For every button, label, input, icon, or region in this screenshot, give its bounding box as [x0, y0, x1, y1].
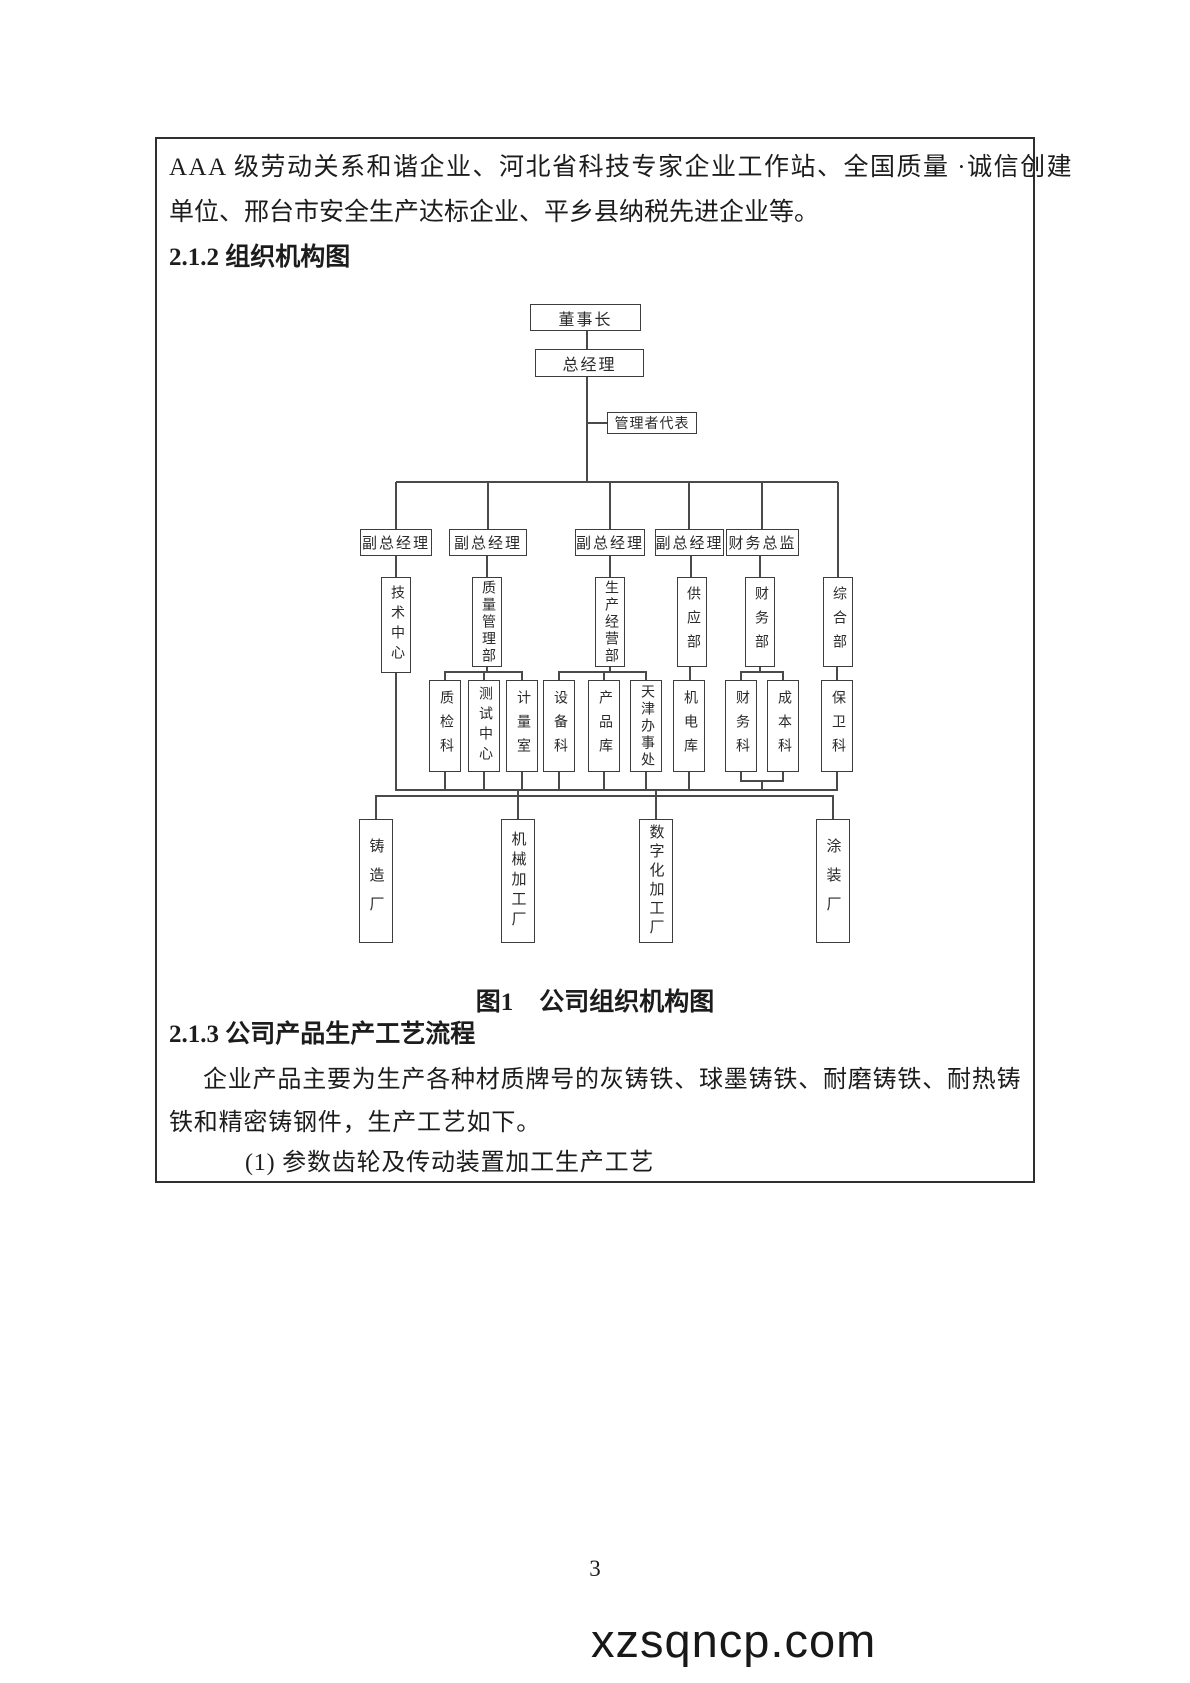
connector-line	[395, 556, 397, 578]
org-node-finance-dept: 财务部	[745, 577, 775, 667]
connector-line	[586, 377, 588, 482]
figure-label: 图1	[476, 989, 514, 1016]
figure-caption: 图1公司组织机构图	[157, 982, 1033, 1018]
org-node-management-rep: 管理者代表	[607, 412, 697, 434]
figure-title: 公司组织机构图	[539, 989, 714, 1016]
org-node-production-dept: 生产经营部	[595, 577, 625, 667]
connector-line	[395, 789, 838, 791]
connector-line	[655, 790, 657, 819]
connector-line	[740, 671, 784, 673]
org-node-vp1: 副总经理	[360, 529, 432, 556]
org-node-general-manager: 总经理	[535, 349, 644, 377]
connector-line	[396, 481, 838, 483]
connector-line	[517, 790, 519, 819]
connector-line	[487, 482, 489, 529]
connector-line	[832, 796, 834, 819]
org-node-vp3: 副总经理	[575, 529, 645, 556]
org-node-tianjin-office: 天津办事处	[630, 680, 662, 772]
org-node-product-warehouse: 产品库	[588, 680, 620, 772]
org-node-test-center: 测试中心	[468, 680, 500, 772]
connector-line	[761, 482, 763, 529]
document-page: AAA 级劳动关系和谐企业、河北省科技专家企业工作站、全国质量 ·诚信创建 单位…	[0, 0, 1190, 1683]
body-paragraph-line-1: 企业产品主要为生产各种材质牌号的灰铸铁、球墨铸铁、耐磨铸铁、耐热铸	[203, 1064, 1023, 1096]
org-node-mech-elec-warehouse: 机电库	[673, 680, 705, 772]
connector-line	[486, 556, 488, 578]
connector-line	[689, 667, 691, 681]
org-node-general-dept: 综合部	[823, 577, 853, 667]
org-node-machining-plant: 机械加工厂	[501, 819, 535, 943]
org-node-cfo: 财务总监	[726, 529, 799, 556]
org-node-qc-section: 质检科	[429, 680, 461, 772]
org-node-tech-center: 技术中心	[381, 577, 411, 673]
org-node-vp4: 副总经理	[655, 529, 724, 556]
intro-line-1: AAA 级劳动关系和谐企业、河北省科技专家企业工作站、全国质量 ·诚信创建	[169, 152, 1023, 184]
connector-line	[837, 482, 839, 578]
org-node-chairman: 董事长	[530, 304, 641, 331]
org-node-supply-dept: 供应部	[677, 577, 707, 667]
list-item-1: (1) 参数齿轮及传动装置加工生产工艺	[245, 1147, 1023, 1179]
section-heading-213: 2.1.3 公司产品生产工艺流程	[169, 1019, 1023, 1051]
body-paragraph-line-2: 铁和精密铸钢件，生产工艺如下。	[169, 1107, 1023, 1139]
connector-line	[375, 795, 834, 797]
connector-line	[759, 556, 761, 578]
org-node-equipment-section: 设备科	[543, 680, 575, 772]
org-node-quality-dept: 质量管理部	[472, 577, 502, 667]
connector-line	[395, 482, 397, 529]
org-node-finance-section: 财务科	[725, 680, 757, 772]
org-node-security-section: 保卫科	[821, 680, 853, 772]
org-node-vp2: 副总经理	[449, 529, 527, 556]
org-node-digital-plant: 数字化加工厂	[639, 819, 673, 943]
connector-line	[688, 482, 690, 529]
org-node-cost-section: 成本科	[767, 680, 799, 772]
intro-line-2: 单位、邢台市安全生产达标企业、平乡县纳税先进企业等。	[169, 197, 1023, 229]
org-node-foundry: 铸造厂	[359, 819, 393, 943]
org-node-painting-plant: 涂装厂	[816, 819, 850, 943]
connector-line	[609, 556, 611, 578]
connector-line	[375, 796, 377, 819]
watermark: xzsqncp.com	[591, 1615, 876, 1667]
page-number: 3	[0, 1556, 1190, 1582]
document-table-cell: AAA 级劳动关系和谐企业、河北省科技专家企业工作站、全国质量 ·诚信创建 单位…	[155, 137, 1035, 1183]
connector-line	[587, 422, 607, 424]
connector-line	[609, 482, 611, 529]
org-node-metrology-room: 计量室	[506, 680, 538, 772]
connector-line	[690, 556, 692, 578]
section-heading-212: 2.1.2 组织机构图	[169, 242, 1023, 274]
connector-line	[586, 331, 588, 349]
connector-line	[836, 667, 838, 681]
connector-line	[395, 673, 397, 791]
